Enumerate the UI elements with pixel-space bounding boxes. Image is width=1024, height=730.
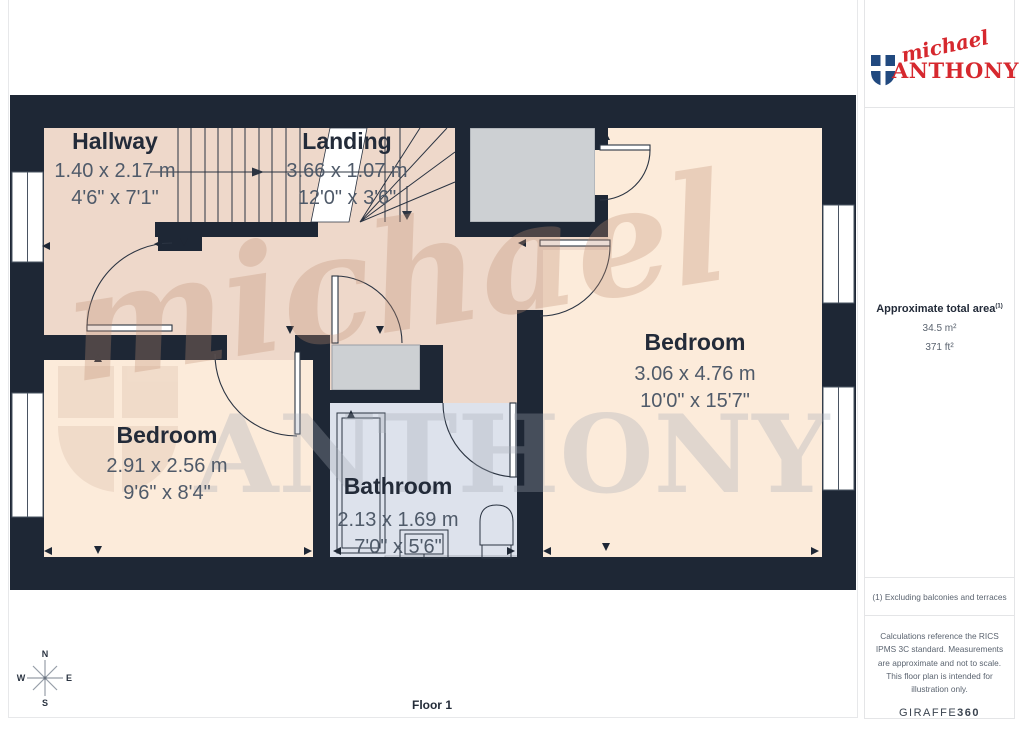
window-right-upper (823, 205, 854, 303)
footnote-text: (1) Excluding balconies and terraces (869, 592, 1009, 602)
hallway-name: Hallway (72, 128, 158, 154)
area-ft2: 371 ft² (865, 342, 1014, 353)
credit-name: GIRAFFE (899, 707, 957, 719)
floorplan-page: { "plan": { "floor_label": "Floor 1", "r… (0, 0, 1024, 725)
bedroom-left-metric: 2.91 x 2.56 m (106, 455, 227, 477)
area-title: Approximate total area(1) (865, 303, 1014, 315)
bedroom-right-imperial: 10'0" x 15'7" (640, 390, 750, 412)
window-left-lower (12, 393, 43, 517)
floor-label: Floor 1 (412, 698, 452, 712)
window-left-upper (12, 172, 43, 262)
compass-w: W (17, 673, 26, 683)
floor-plan-area: michael ANTHONY Hallway 1.40 x 2.17 m 4'… (0, 0, 862, 725)
bathroom-name: Bathroom (344, 473, 453, 499)
landing-metric: 3.66 x 1.07 m (286, 160, 407, 182)
area-m2: 34.5 m² (865, 323, 1014, 334)
footnote-box: (1) Excluding balconies and terraces (865, 577, 1014, 616)
landing-imperial: 12'0" x 3'6" (298, 187, 397, 209)
bedroom-right-metric: 3.06 x 4.76 m (634, 363, 755, 385)
credit-suffix: 360 (957, 707, 980, 719)
bedroom-right-name: Bedroom (645, 329, 746, 355)
info-sidebar: michael ANTHONY Approximate total area(1… (864, 0, 1015, 719)
area-title-text: Approximate total area (876, 303, 995, 315)
disclaimer-box: Calculations reference the RICS IPMS 3C … (865, 614, 1014, 719)
logo-name-text: ANTHONY (892, 58, 1014, 83)
area-title-superscript: (1) (995, 303, 1002, 309)
agency-logo: michael ANTHONY (865, 0, 1014, 108)
bathroom-metric: 2.13 x 1.69 m (337, 509, 458, 531)
bedroom-left-name: Bedroom (117, 422, 218, 448)
compass-icon: N E S W (17, 649, 72, 708)
bedroom-left-imperial: 9'6" x 8'4" (123, 482, 210, 504)
floor-plan-svg: michael ANTHONY Hallway 1.40 x 2.17 m 4'… (0, 0, 862, 725)
total-area-block: Approximate total area(1) 34.5 m² 371 ft… (865, 303, 1014, 353)
disclaimer-text: Calculations reference the RICS IPMS 3C … (865, 614, 1014, 696)
hallway-metric: 1.40 x 2.17 m (54, 160, 175, 182)
bathroom-imperial: 7'0" x 5'6" (354, 536, 441, 558)
hallway-imperial: 4'6" x 7'1" (71, 187, 158, 209)
compass-s: S (42, 698, 48, 708)
giraffe360-credit: GIRAFFE360 (865, 707, 1014, 719)
compass-e: E (66, 673, 72, 683)
compass-n: N (42, 649, 49, 659)
landing-name: Landing (302, 128, 391, 154)
